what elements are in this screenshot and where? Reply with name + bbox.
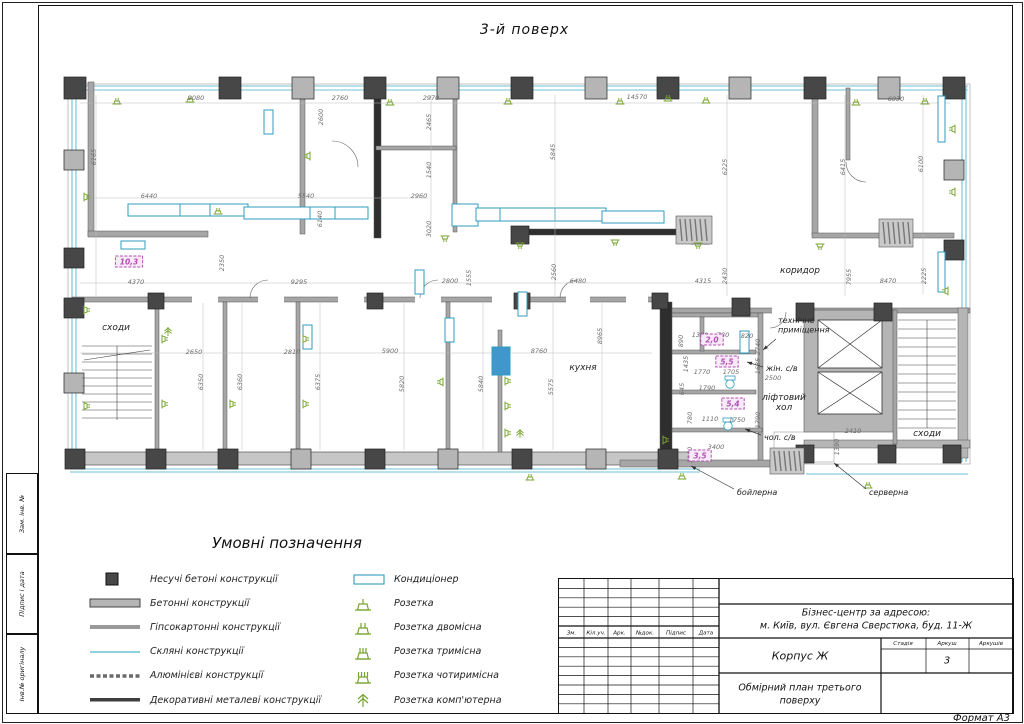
- annotation: бойлерна: [690, 464, 777, 497]
- room-label: кухня: [569, 363, 597, 373]
- title-block: Зм.Кіл.уч.Арк.№док.ПідписДата Бізнес-цен…: [558, 578, 1014, 714]
- dimension-label: 2410: [845, 427, 862, 435]
- socket-icon: [702, 97, 711, 103]
- ac-unit-icon: [518, 292, 527, 316]
- leader-line: [691, 466, 734, 489]
- grille: [879, 219, 913, 247]
- socket-icon: [84, 306, 90, 315]
- legend-right-column: Кондиціонер Розетка Розетка двомісна Роз…: [346, 567, 502, 712]
- dimension-label: 2970: [423, 94, 440, 102]
- legend-item: Бетонні конструкції: [88, 591, 321, 615]
- dimension-label: 6140: [316, 211, 324, 228]
- legend-item-label: Скляні конструкції: [150, 646, 244, 657]
- ac-unit-icon: [415, 270, 424, 294]
- room-label: сходи: [913, 429, 941, 439]
- dimension-label: 2560: [550, 264, 558, 281]
- dimension-label: 9295: [291, 278, 308, 286]
- dimension-label: 6225: [721, 159, 729, 176]
- legend-item: Розетка чотиримісна: [346, 664, 502, 688]
- hvac-ducts: [128, 204, 664, 226]
- dimension-label: 14570: [627, 93, 648, 101]
- ac-unit-icon: [938, 252, 945, 292]
- annotation-label: чол. с/в: [764, 433, 796, 442]
- area-badge-value: 5,5: [720, 358, 733, 367]
- socket-icon: [230, 400, 236, 409]
- legend-item-label: Розетка чотиримісна: [394, 670, 499, 681]
- dimension-label: 5575: [547, 379, 555, 396]
- legend-item-label: Розетка тримісна: [394, 646, 481, 657]
- legend-item: Скляні конструкції: [88, 640, 321, 664]
- line-cyan-icon: [88, 647, 144, 657]
- dimension-label: 5840: [477, 376, 485, 393]
- column: [367, 293, 383, 309]
- dimension-label: 1770: [694, 368, 711, 376]
- annotation: серверна: [833, 462, 908, 497]
- project-name-line1: Бізнес-центр за адресою:: [802, 608, 930, 619]
- sq-icon: [88, 571, 144, 587]
- dimension-label: 5820: [398, 376, 406, 393]
- dimension-label: 1705: [723, 368, 740, 376]
- dimension-label: 1790: [754, 412, 762, 429]
- dimension-label: 6165: [90, 149, 98, 166]
- ac-unit-icon: [121, 241, 145, 249]
- dimension-label: 6415: [839, 159, 847, 176]
- dimension-label: 4370: [128, 278, 145, 286]
- sq-icon: [88, 571, 150, 587]
- legend-item: Гіпсокартонні конструкції: [88, 615, 321, 639]
- sock2-icon: [352, 617, 376, 637]
- socket-icon: [303, 400, 309, 409]
- dimension-label: 6350: [197, 374, 205, 391]
- dimension-label: 1390: [833, 439, 841, 456]
- column: [804, 77, 826, 99]
- dimension-label: 9080: [188, 94, 205, 102]
- title-block-header-col: №док.: [635, 631, 654, 637]
- legend-item-label: Розетка: [394, 598, 434, 609]
- dimension-label: 3400: [708, 443, 725, 451]
- dimension-label: 6360: [236, 374, 244, 391]
- room-label: сходи: [102, 323, 130, 333]
- column: [291, 449, 311, 469]
- sock4-icon: [346, 666, 394, 686]
- dimension-label: 2960: [411, 192, 428, 200]
- sock2-icon: [346, 617, 394, 637]
- dimension-label: 7955: [845, 269, 853, 286]
- column: [64, 150, 84, 170]
- socket-icon: [949, 188, 955, 197]
- legend-item-label: Бетонні конструкції: [150, 598, 249, 609]
- line-gray-icon: [88, 622, 150, 632]
- sock1-icon: [352, 593, 376, 613]
- line-dark-icon: [88, 695, 150, 705]
- title-block-header-col: Арк.: [612, 631, 626, 637]
- sock3-icon: [352, 642, 376, 662]
- dimension-label: 1790: [699, 384, 716, 392]
- legend-item-label: Гіпсокартонні конструкції: [150, 622, 280, 633]
- area-badge-value: 3,5: [693, 452, 706, 461]
- block-name: Корпус Ж: [772, 650, 829, 663]
- legend-item: Розетка тримісна: [346, 640, 502, 664]
- title-block-header-col: Кіл.уч.: [586, 631, 605, 637]
- sock3-icon: [346, 642, 394, 662]
- area-badge-value: 5,4: [726, 400, 739, 409]
- ac-unit-icon: [938, 96, 945, 142]
- column: [658, 449, 678, 469]
- format-label: Формат А3: [900, 713, 1010, 724]
- column: [944, 160, 964, 180]
- legend-item-label: Несучі бетоні конструкції: [150, 574, 278, 585]
- column: [148, 293, 164, 309]
- column: [586, 449, 606, 469]
- bar-icon: [88, 596, 144, 610]
- area-badge-value: 2,0: [705, 336, 718, 345]
- column: [218, 449, 238, 469]
- column: [438, 449, 458, 469]
- sockpc-icon: [346, 690, 394, 710]
- socket-icon: [526, 474, 535, 480]
- legend-item: Розетка двомісна: [346, 615, 502, 639]
- legend-item: Розетка: [346, 591, 502, 615]
- legend-item: Декоративні металеві конструкції: [88, 688, 321, 712]
- column: [511, 77, 533, 99]
- legend-item-label: Алюмінієві конструкції: [150, 670, 263, 681]
- column: [878, 445, 896, 463]
- dimension-label: 2740: [754, 339, 762, 356]
- sock4-icon: [352, 666, 376, 686]
- area-badge: 10,3: [115, 256, 142, 267]
- dimension-label: 2760: [332, 94, 349, 102]
- ac-icon: [346, 572, 394, 586]
- dimension-label: 780: [686, 412, 694, 424]
- grille: [770, 448, 804, 474]
- leader-line: [834, 463, 866, 489]
- socket-icon: [505, 429, 511, 438]
- line-gray-icon: [88, 622, 144, 632]
- dimension-label: 1540: [425, 162, 433, 179]
- column: [512, 449, 532, 469]
- dimension-label: 2225: [920, 268, 928, 285]
- dimension-label: 3020: [425, 221, 433, 238]
- dimension-label: 2650: [186, 348, 203, 356]
- dimension-label: 1750: [729, 416, 746, 424]
- socket-icon: [816, 244, 825, 250]
- ac-unit-icon: [492, 347, 510, 375]
- doc-title-line2: поверху: [780, 696, 821, 707]
- computer-socket-icon: [165, 327, 172, 336]
- socket-icon: [852, 99, 861, 105]
- socket-icon: [678, 473, 687, 479]
- dimension-label: 5845: [549, 144, 557, 161]
- sockpc-icon: [352, 690, 376, 710]
- line-cyan-icon: [88, 647, 150, 657]
- dimension-label: 820: [741, 332, 753, 340]
- sheet-number: 3: [944, 656, 950, 667]
- drawing-sheet: 3-й поверх Зам. інв. № Підпис і дата Інв…: [0, 0, 1024, 724]
- annotation-label: бойлерна: [737, 488, 777, 497]
- dimension-label: 6100: [917, 156, 925, 173]
- ac-icon: [352, 572, 388, 586]
- dimension-label: 1555: [465, 270, 473, 287]
- column: [944, 240, 964, 260]
- column: [943, 445, 961, 463]
- socket-icon: [441, 236, 450, 242]
- dimension-label: 8965: [596, 328, 604, 345]
- legend-item-label: Кондиціонер: [394, 574, 459, 585]
- stairs-left: [82, 346, 152, 420]
- legend-left-column: Несучі бетоні конструкціїБетонні констру…: [88, 567, 321, 712]
- dimension-label: 6375: [314, 374, 322, 391]
- room-label: коридор: [780, 266, 820, 276]
- column: [146, 449, 166, 469]
- area-badge: 3,5: [689, 450, 711, 461]
- bar-icon: [88, 596, 150, 610]
- ac-unit-icon: [303, 325, 312, 349]
- dimension-label: 2600: [317, 109, 325, 126]
- legend-item: Несучі бетоні конструкції: [88, 567, 321, 591]
- title-block-header-col: Дата: [698, 631, 714, 637]
- dimension-label: 6030: [888, 95, 905, 103]
- legend-title: Умовні позначення: [212, 534, 568, 552]
- column: [64, 373, 84, 393]
- stairs-right: [898, 320, 956, 428]
- computer-socket-icon: [517, 429, 524, 438]
- toilet-icon: [726, 380, 734, 388]
- dimension-label: 6440: [141, 192, 158, 200]
- socket-icon: [949, 125, 955, 134]
- legend-item-label: Розетка комп'ютерна: [394, 695, 502, 706]
- dimension-label: 8760: [531, 347, 548, 355]
- column: [943, 77, 965, 99]
- project-name-line2: м. Київ, вул. Євгена Сверстюка, буд. 11-…: [760, 621, 972, 632]
- dimension-label: 2465: [425, 114, 433, 131]
- dimension-label: 5900: [382, 347, 399, 355]
- dimension-label: 1435: [682, 356, 690, 373]
- column: [657, 77, 679, 99]
- dimension-label: 2350: [218, 255, 226, 272]
- column: [729, 77, 751, 99]
- dimension-label: 4315: [695, 277, 712, 285]
- annotation-label: жін. с/в: [765, 364, 798, 373]
- socket-icon: [162, 335, 168, 344]
- column: [511, 226, 529, 244]
- sheet-label: Аркуш: [937, 641, 956, 647]
- area-badge-value: 10,3: [120, 258, 139, 267]
- column: [652, 293, 668, 309]
- socket-icon: [437, 378, 443, 387]
- sheets-label: Аркушів: [979, 641, 1003, 647]
- line-dark-icon: [88, 695, 144, 705]
- column: [732, 298, 750, 316]
- dimension-label: 890: [677, 335, 685, 347]
- dimension-label: 645: [678, 383, 686, 395]
- column: [364, 77, 386, 99]
- area-badge: 2,0: [701, 334, 723, 345]
- leader-arrow: [746, 360, 752, 365]
- area-badge: 5,5: [716, 356, 738, 367]
- doc-title-line1: Обмірний план третього: [738, 683, 861, 694]
- socket-icon: [84, 402, 90, 411]
- title-block-header-col: Зм.: [567, 631, 577, 637]
- dimension-label: 6480: [570, 277, 587, 285]
- ac-unit-icon: [445, 318, 454, 342]
- socket-icon: [611, 240, 620, 246]
- column: [65, 449, 85, 469]
- sock1-icon: [346, 593, 394, 613]
- title-block-header-col: Підпис: [666, 631, 686, 637]
- column: [585, 77, 607, 99]
- column: [219, 77, 241, 99]
- legend-item: Розетка комп'ютерна: [346, 688, 502, 712]
- room-label: ліфтовийхол: [761, 393, 806, 413]
- dimension-label: 2810: [284, 348, 301, 356]
- area-badge: 5,4: [722, 398, 744, 409]
- legend-item-label: Декоративні металеві конструкції: [150, 695, 321, 706]
- socket-icon: [162, 400, 168, 409]
- socket-icon: [505, 402, 511, 411]
- legend-item-label: Розетка двомісна: [394, 622, 482, 633]
- socket-icon: [505, 377, 511, 386]
- column: [437, 77, 459, 99]
- line-dash-icon: [88, 671, 144, 681]
- legend: Умовні позначення Несучі бетоні конструк…: [88, 534, 568, 552]
- ac-unit-icon: [264, 110, 273, 134]
- column: [874, 303, 892, 321]
- legend-item: Алюмінієві конструкції: [88, 664, 321, 688]
- dimension-label: 2800: [442, 277, 459, 285]
- grille: [676, 216, 712, 244]
- column: [365, 449, 385, 469]
- line-dash-icon: [88, 671, 150, 681]
- dimension-label: 1110: [702, 415, 719, 423]
- socket-icon: [386, 99, 395, 105]
- column: [64, 298, 84, 318]
- annotation-label: серверна: [869, 488, 908, 497]
- dimension-label: 8470: [880, 277, 897, 285]
- dimension-label: 5540: [298, 192, 315, 200]
- dimension-label: 2430: [721, 268, 729, 285]
- column: [64, 77, 86, 99]
- column: [292, 77, 314, 99]
- dimension-label: 2500: [765, 374, 782, 382]
- stage-label: Стадія: [893, 641, 912, 647]
- legend-item: Кондиціонер: [346, 567, 502, 591]
- column: [64, 248, 84, 268]
